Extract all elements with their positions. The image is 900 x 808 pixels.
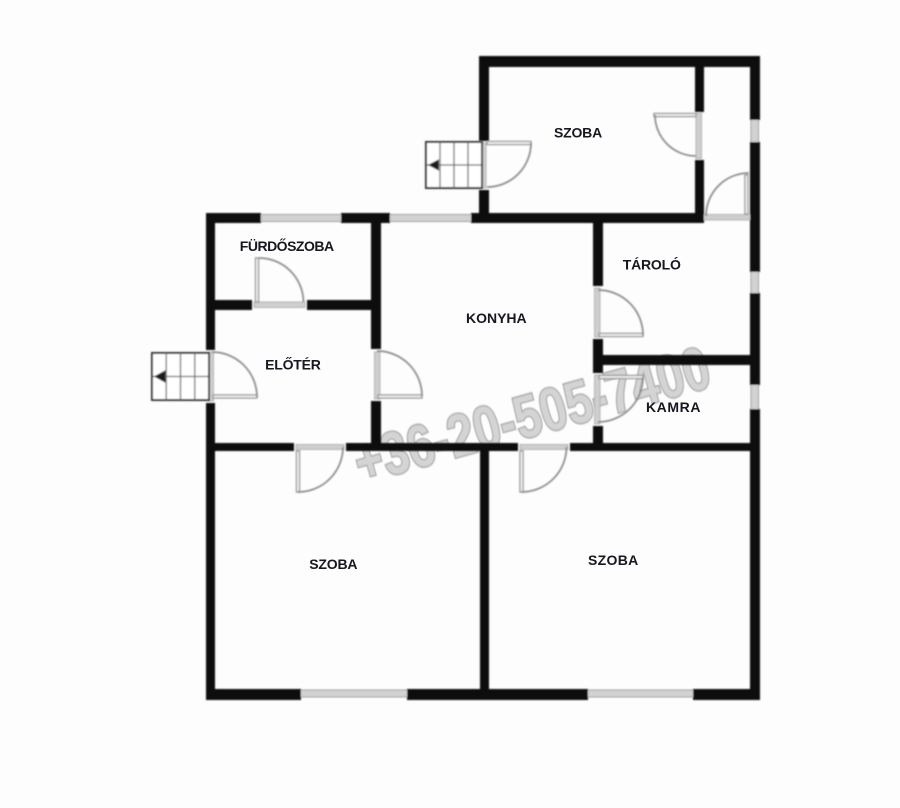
- svg-text:SZOBA: SZOBA: [554, 125, 602, 141]
- svg-text:TÁROLÓ: TÁROLÓ: [623, 256, 681, 273]
- svg-text:SZOBA: SZOBA: [309, 556, 357, 572]
- svg-text:FÜRDŐSZOBA: FÜRDŐSZOBA: [240, 237, 334, 254]
- svg-text:ELŐTÉR: ELŐTÉR: [265, 356, 321, 373]
- svg-text:KONYHA: KONYHA: [466, 310, 527, 326]
- svg-text:KAMRA: KAMRA: [646, 399, 701, 415]
- svg-text:SZOBA: SZOBA: [588, 552, 639, 568]
